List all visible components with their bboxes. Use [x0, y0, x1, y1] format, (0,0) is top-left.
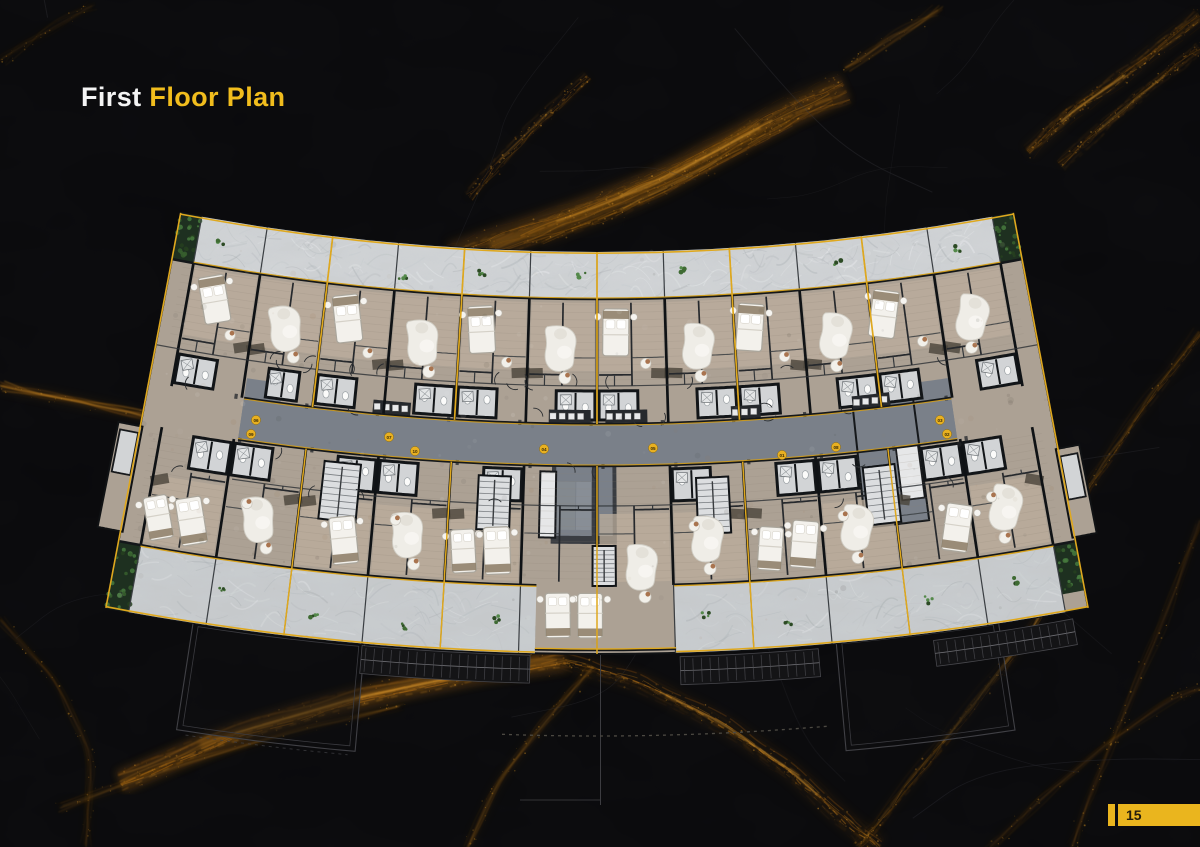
svg-text:01: 01	[779, 453, 785, 458]
svg-text:04: 04	[541, 447, 547, 452]
svg-text:08: 08	[833, 445, 839, 450]
svg-text:05: 05	[650, 446, 656, 451]
svg-text:10: 10	[412, 449, 418, 454]
svg-text:09: 09	[248, 432, 254, 437]
svg-text:03: 03	[937, 418, 943, 423]
svg-text:06: 06	[253, 418, 259, 423]
svg-text:07: 07	[386, 435, 392, 440]
svg-text:02: 02	[944, 432, 950, 437]
